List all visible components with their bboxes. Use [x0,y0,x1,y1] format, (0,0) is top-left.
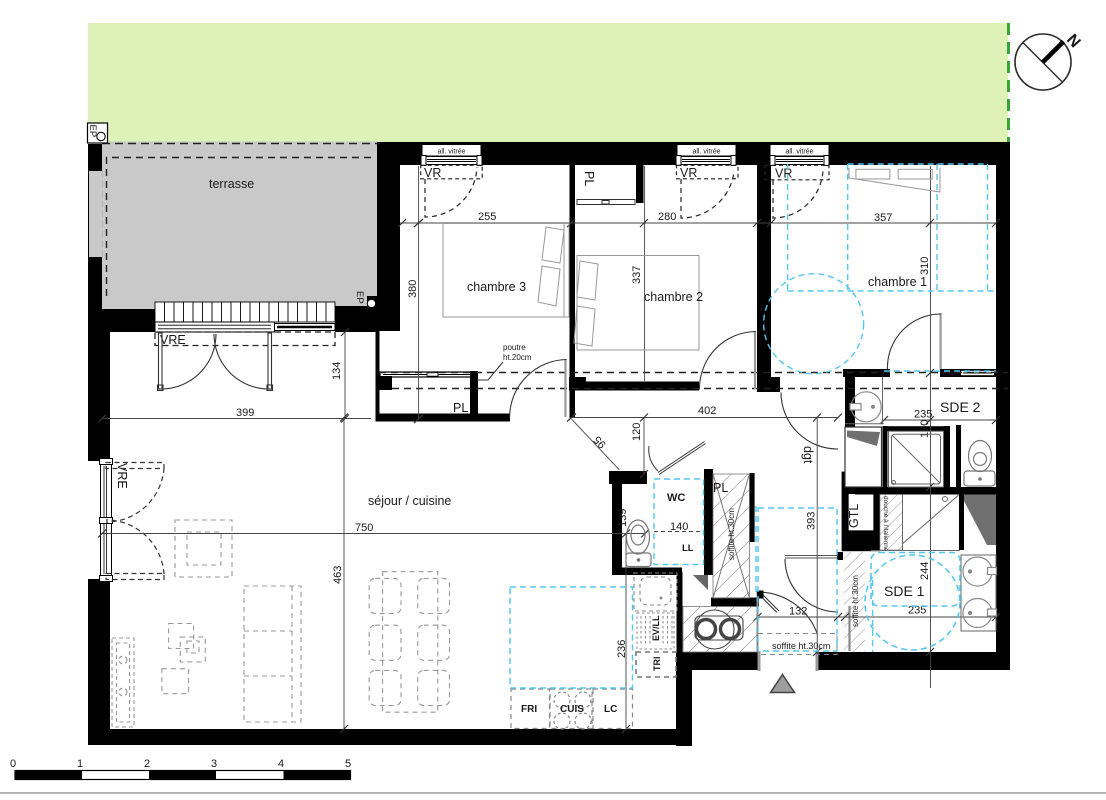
svg-text:soffite ht.30cm: soffite ht.30cm [851,575,860,627]
svg-text:chambre 1: chambre 1 [868,275,927,289]
svg-text:402: 402 [698,405,716,417]
svg-text:chambre 3: chambre 3 [467,280,526,294]
svg-text:SDE 2: SDE 2 [940,399,981,415]
svg-text:TRI: TRI [652,657,662,672]
svg-text:douche à l'italienne: douche à l'italienne [882,496,889,552]
svg-text:CUIS: CUIS [560,704,584,715]
svg-text:4: 4 [278,758,284,770]
svg-text:310: 310 [919,257,931,275]
svg-text:170: 170 [919,420,931,438]
svg-text:EV/LL: EV/LL [651,615,661,641]
svg-text:PL: PL [453,401,468,415]
svg-text:255: 255 [478,211,496,223]
svg-text:750: 750 [355,522,373,534]
svg-text:236: 236 [616,640,628,658]
svg-text:all. vitrée: all. vitrée [785,149,813,156]
svg-text:GTL: GTL [847,504,861,528]
svg-text:LC: LC [604,704,617,715]
svg-text:337: 337 [631,266,643,284]
svg-text:FRI: FRI [521,704,537,715]
svg-text:PL: PL [713,481,728,495]
svg-text:terrasse: terrasse [209,177,254,191]
svg-text:LL: LL [682,543,694,554]
svg-text:PL: PL [582,171,596,186]
svg-text:SDE 1: SDE 1 [884,583,925,599]
svg-text:2: 2 [144,758,150,770]
svg-text:357: 357 [874,212,892,224]
svg-text:235: 235 [914,409,932,421]
svg-text:ht.20cm: ht.20cm [503,353,532,362]
svg-text:399: 399 [236,407,254,419]
svg-text:3: 3 [211,758,217,770]
svg-text:244: 244 [919,562,931,580]
svg-text:393: 393 [806,512,818,530]
svg-text:VRE: VRE [115,463,129,489]
svg-text:134: 134 [331,362,343,380]
svg-text:all. vitrée: all. vitrée [692,149,720,156]
svg-text:VR: VR [680,166,697,180]
svg-text:0: 0 [10,758,16,770]
svg-text:dgt: dgt [801,446,815,464]
svg-text:soffite ht.30cm: soffite ht.30cm [727,508,736,560]
svg-text:280: 280 [658,211,676,223]
svg-text:140: 140 [670,521,688,533]
svg-text:VRE: VRE [160,333,186,347]
svg-text:soffite ht.30cm: soffite ht.30cm [772,641,830,651]
svg-text:132: 132 [789,606,807,618]
svg-text:EP: EP [354,291,365,304]
svg-text:VR: VR [424,166,441,180]
svg-text:120: 120 [631,423,643,441]
svg-text:EP: EP [87,125,98,138]
svg-text:séjour / cuisine: séjour / cuisine [368,494,451,508]
svg-text:1: 1 [77,758,83,770]
svg-text:WC: WC [667,492,685,504]
svg-text:poutre: poutre [503,343,526,352]
svg-text:463: 463 [332,566,344,584]
svg-text:380: 380 [407,280,419,298]
svg-text:5: 5 [345,758,351,770]
svg-text:139: 139 [617,509,629,527]
svg-text:chambre 2: chambre 2 [644,290,703,304]
svg-text:VR: VR [775,167,792,181]
svg-text:all. vitrée: all. vitrée [437,149,465,156]
